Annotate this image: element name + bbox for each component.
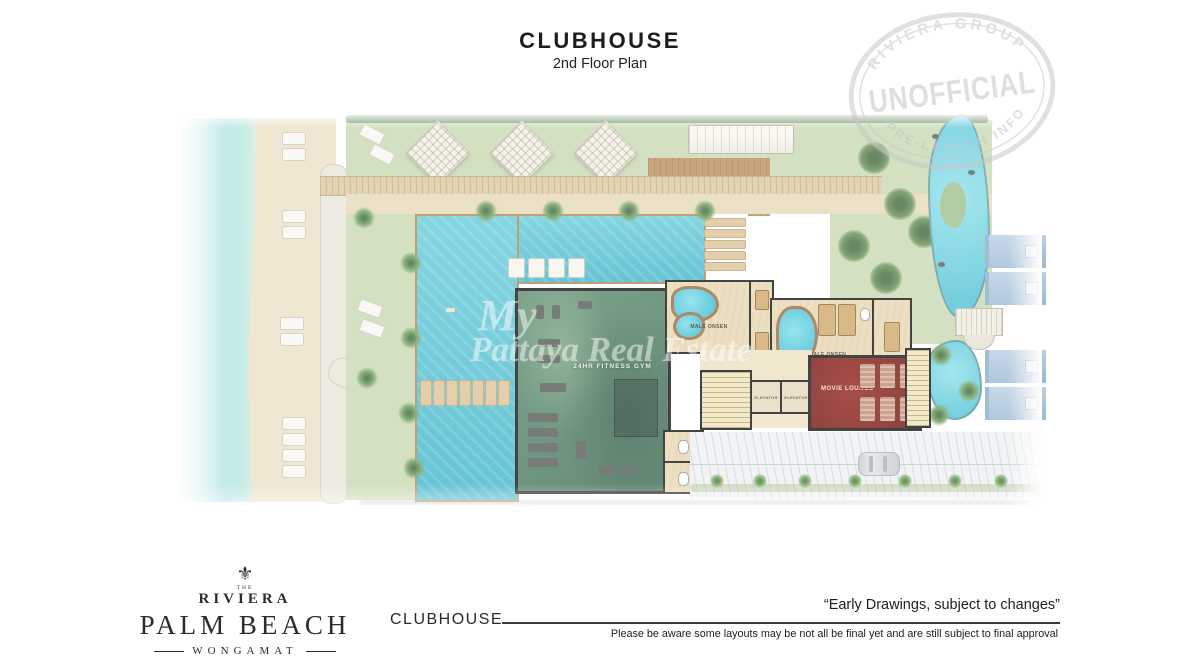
riviera-logo: ⚜ THE RIVIERA PALM BEACH WONGAMAT [140, 566, 350, 657]
fade-right [1008, 112, 1042, 532]
footer-plan-label: CLUBHOUSE [390, 611, 503, 629]
footer-disclaimer: Please be aware some layouts may be not … [480, 628, 1058, 640]
footer-quote: “Early Drawings, subject to changes” [620, 597, 1060, 613]
logo-rule-left [154, 651, 184, 652]
logo-brand: RIVIERA [198, 591, 291, 608]
stamp-main-text: UNOFFICIAL [867, 64, 1037, 120]
fade-bottom [170, 484, 1042, 532]
logo-project-name: PALM BEACH [140, 610, 351, 641]
footer-divider [502, 622, 1060, 624]
logo-location: WONGAMAT [192, 645, 297, 657]
logo-ornament-icon: ⚜ [236, 566, 253, 584]
logo-rule-right [306, 651, 336, 652]
fade-left [170, 112, 250, 532]
unofficial-stamp: RIVIERA GROUP UNOFFICIAL PRE-LAUNCH INFO [835, 0, 1068, 188]
logo-location-row: WONGAMAT [154, 645, 335, 657]
page: CLUBHOUSE 2nd Floor Plan [0, 0, 1200, 665]
